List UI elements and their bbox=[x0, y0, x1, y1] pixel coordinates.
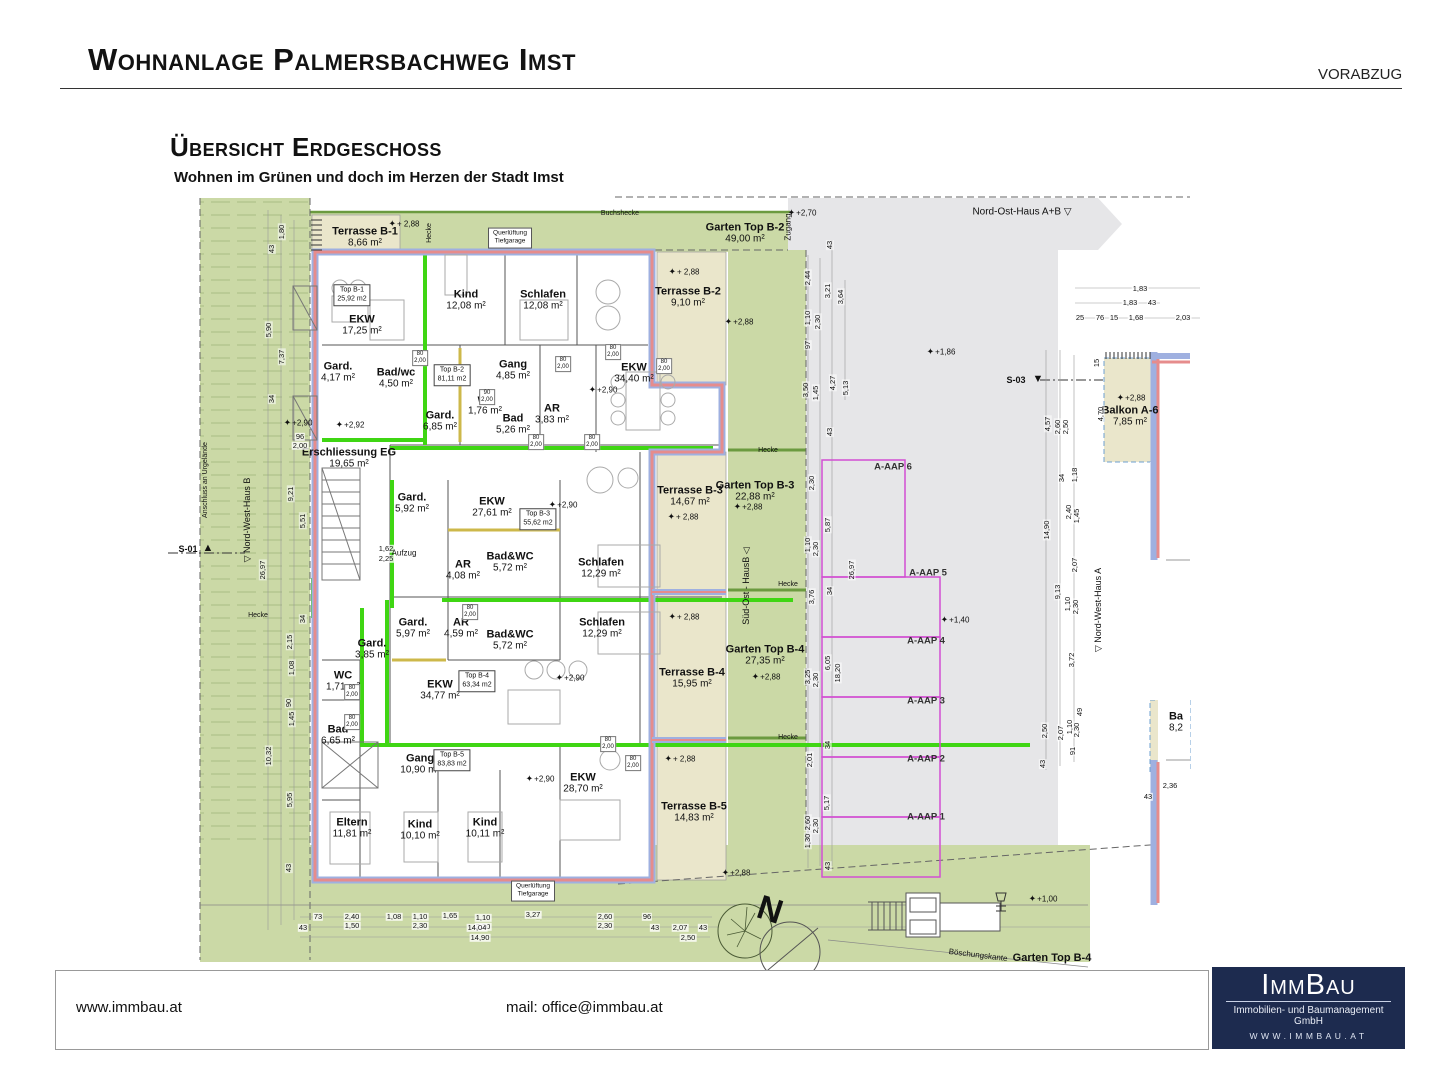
floorplan: EKW17,25 m²Kind12,08 m²Schlafen12,08 m²E… bbox=[0, 0, 1439, 1079]
footer-email-link[interactable]: mail: office@immbau.at bbox=[506, 999, 663, 1016]
footer-box: www.immbau.at mail: office@immbau.at bbox=[55, 970, 1209, 1050]
terrace-steps-comb bbox=[311, 220, 322, 250]
immbau-logo: ImmBau Immobilien- und Baumanagement Gmb… bbox=[1212, 967, 1405, 1049]
green-column-east bbox=[728, 250, 808, 880]
floorplan-drawing bbox=[0, 0, 1439, 1079]
logo-subtitle: Immobilien- und Baumanagement GmbH bbox=[1226, 1001, 1391, 1027]
tree bbox=[718, 904, 772, 958]
footer-website-link[interactable]: www.immbau.at bbox=[76, 999, 182, 1016]
logo-wordmark: ImmBau bbox=[1212, 970, 1405, 1000]
grey-field-east bbox=[806, 250, 1058, 845]
plan-sheet: Wohnanlage Palmersbachweg Imst VORABZUG … bbox=[0, 0, 1439, 1079]
logo-url: WWW.IMMBAU.AT bbox=[1212, 1031, 1405, 1041]
grey-band-northeast bbox=[788, 198, 1122, 250]
